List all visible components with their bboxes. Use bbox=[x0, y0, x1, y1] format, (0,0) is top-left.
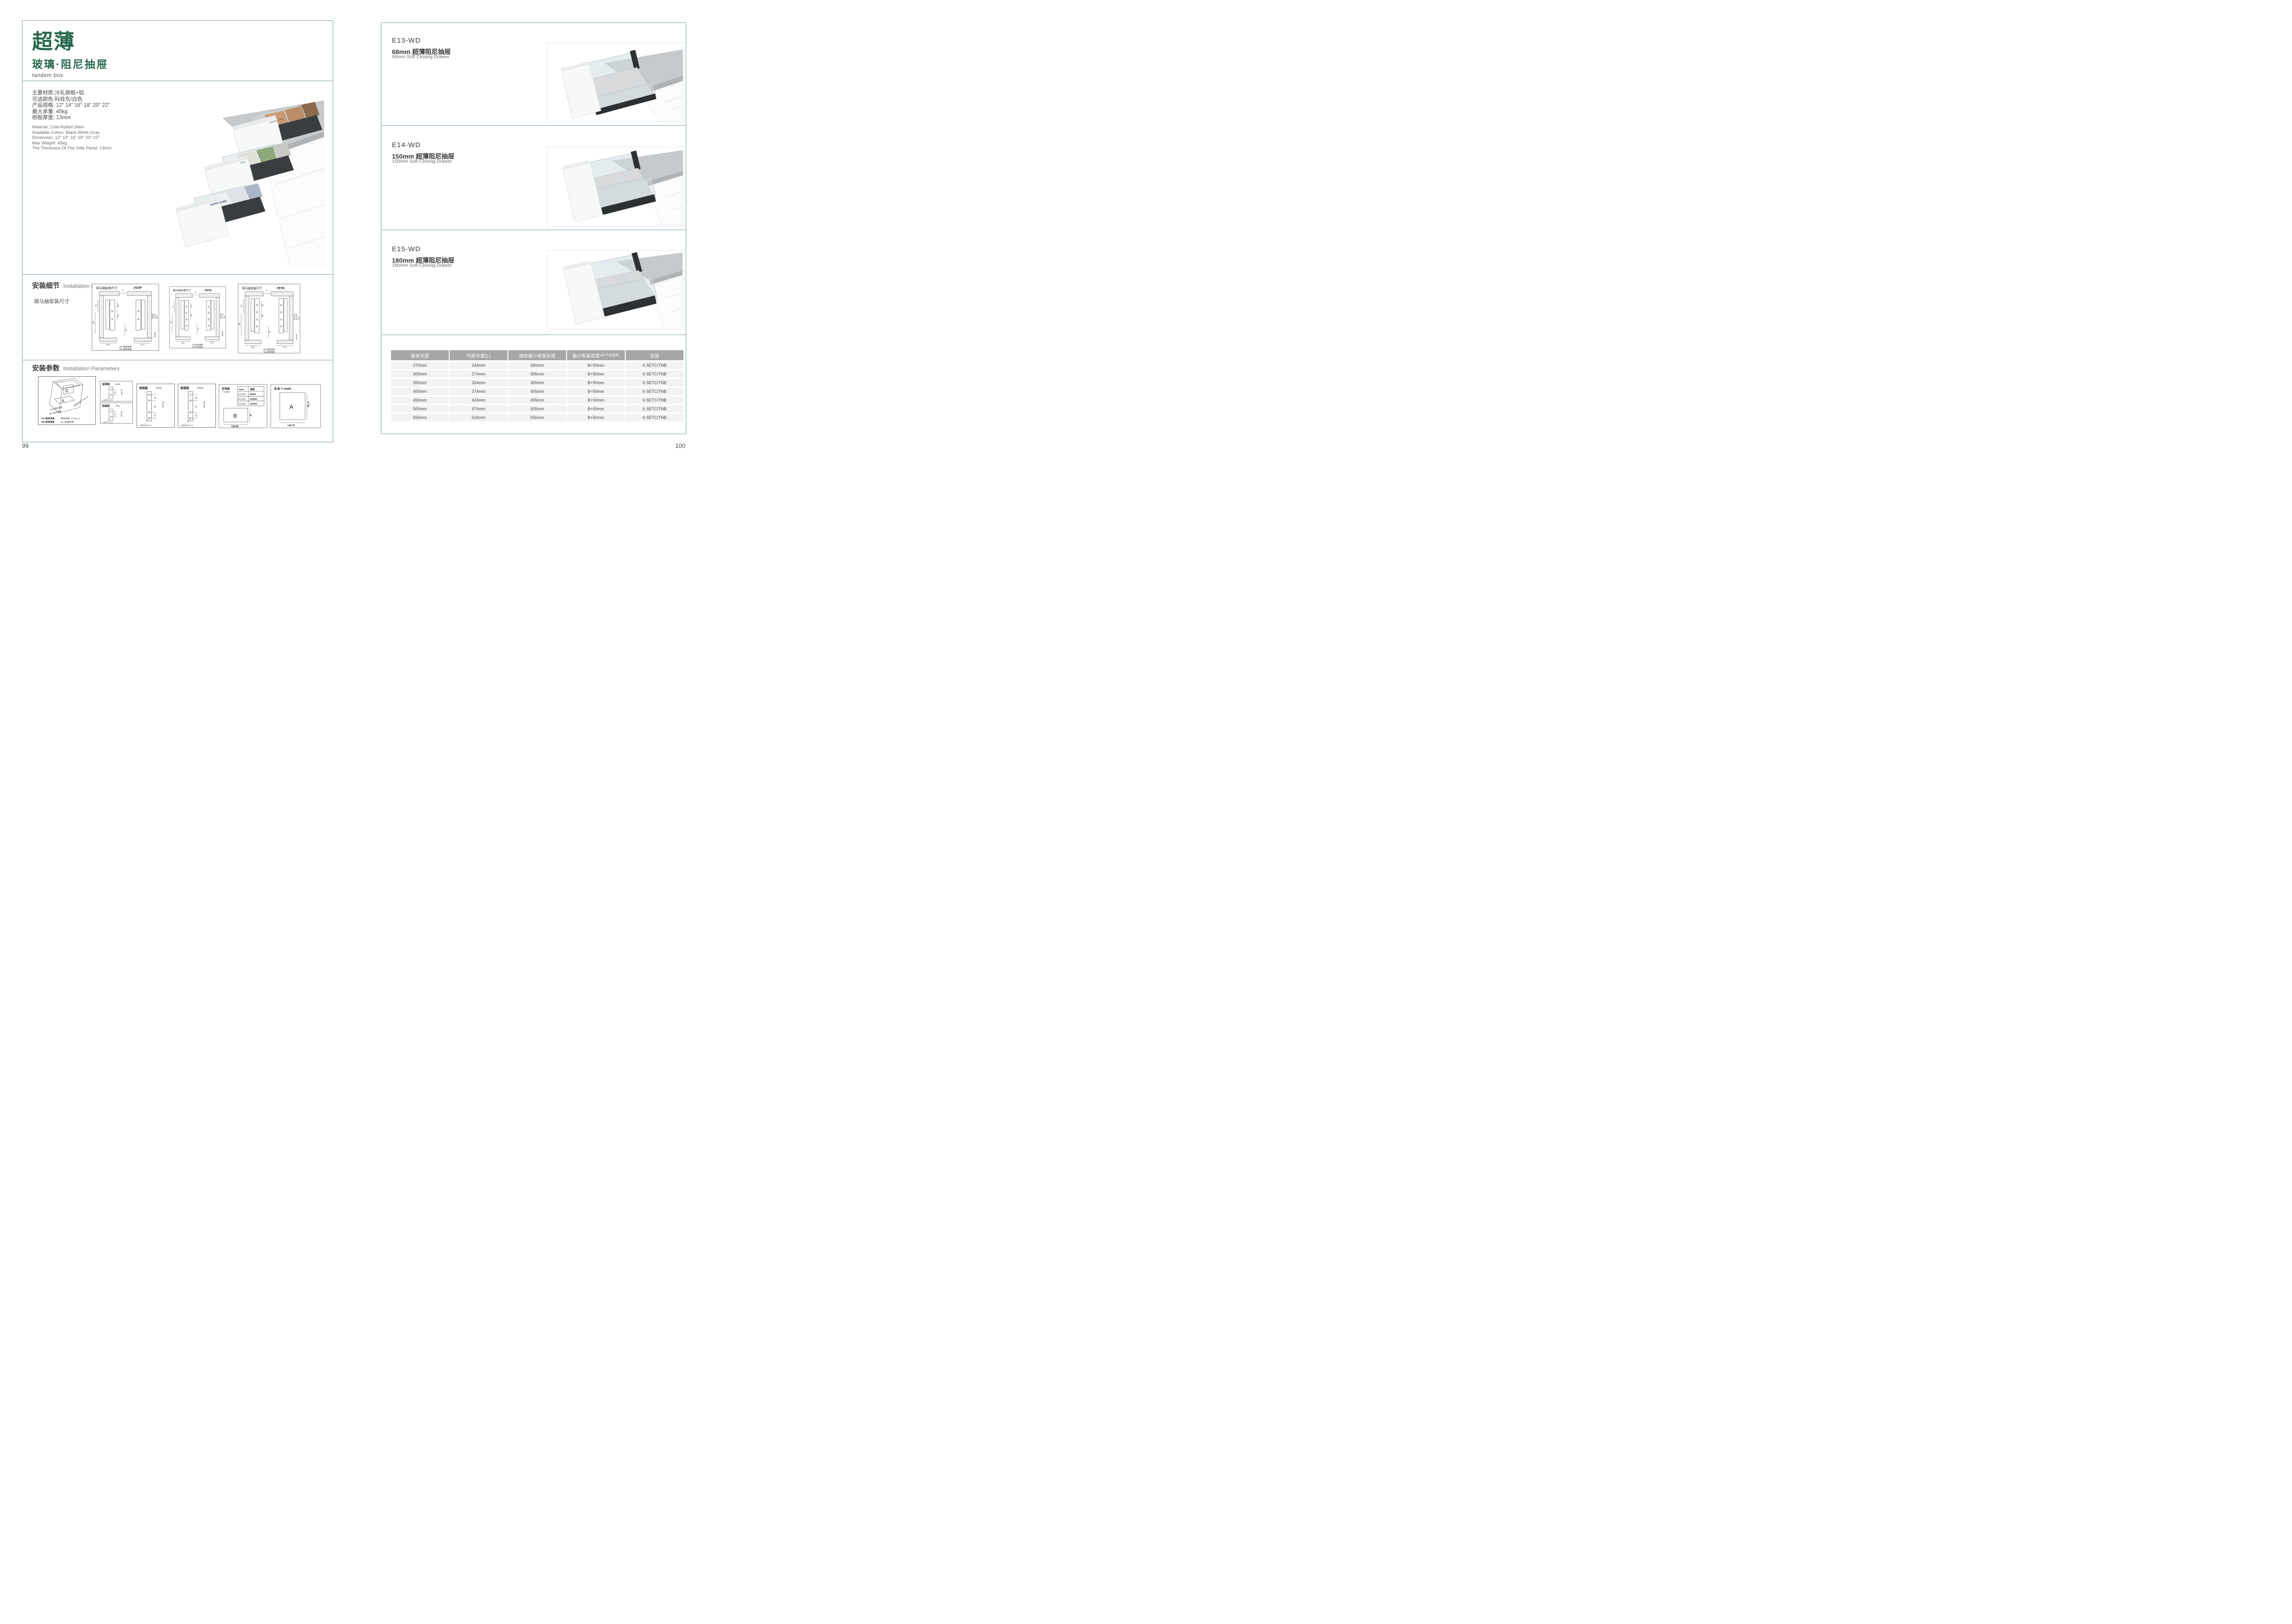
open-drawer-bottom: SUPER CORN bbox=[176, 183, 265, 247]
svg-text:min 54: min 54 bbox=[162, 401, 165, 408]
svg-text:32: 32 bbox=[114, 391, 116, 393]
svg-text:20: 20 bbox=[261, 304, 264, 307]
product-photo-e15 bbox=[547, 250, 684, 329]
front-panel-707G-diagram: 前面板 -707G 32 64 32 min 54 4-Ø2+0.2-0.1 bbox=[137, 384, 175, 428]
page-title: 超薄 bbox=[32, 31, 75, 52]
spec-line: 主要材质:冷轧钢板+铝 bbox=[32, 90, 110, 97]
svg-text:H: H bbox=[250, 414, 253, 416]
svg-text:16.5: 16.5 bbox=[181, 341, 185, 344]
svg-text:64: 64 bbox=[154, 405, 157, 408]
svg-text:20: 20 bbox=[117, 304, 119, 307]
svg-text:2-Ø2+0.2-0.1: 2-Ø2+0.2-0.1 bbox=[103, 421, 113, 423]
spec-line: 可选颜色:科技灰/白色 bbox=[32, 97, 110, 103]
install-details-subtitle: 骑马抽安装尺寸 bbox=[34, 297, 69, 305]
product-code: E15-WD bbox=[392, 245, 421, 253]
spec-line: 产品规格: 12" 14" 16" 18" 20" 22" bbox=[32, 103, 110, 109]
column-header: 内部长度(L) bbox=[450, 350, 507, 360]
svg-text:32: 32 bbox=[261, 314, 264, 317]
spec-line: Material: Cold-Rolled Steel bbox=[32, 125, 111, 130]
svg-text:-707P: -707P bbox=[133, 286, 142, 290]
spec-line: Max Weight: 45kg bbox=[32, 141, 111, 146]
svg-text:-707G: -707G bbox=[155, 387, 162, 390]
table-row: 300mm274mm305mmB+50mm6 SETC/TNB bbox=[391, 370, 683, 378]
svg-text:-707L: -707L bbox=[115, 405, 121, 408]
divider bbox=[381, 125, 686, 126]
table-row: 350mm324mm355mmB+50mm6 SETC/TNB bbox=[391, 379, 683, 386]
svg-text:Min36: Min36 bbox=[222, 331, 224, 336]
table-row: 550mm524mm555mmB+50mm6 SETC/TNB bbox=[391, 414, 683, 421]
svg-text:骑马抽安装尺寸: 骑马抽安装尺寸 bbox=[96, 286, 118, 290]
svg-text:前面板: 前面板 bbox=[181, 385, 190, 390]
install-params-title-en: Installation Parameters bbox=[63, 365, 120, 372]
product-code: E13-WD bbox=[392, 37, 421, 44]
install-diagram-707H: 骑马抽安装尺寸 -707H 9 20 32 bbox=[238, 284, 300, 353]
svg-text:Min36: Min36 bbox=[295, 334, 298, 339]
svg-text:A: A bbox=[61, 398, 65, 403]
install-diagram-707P: 骑马抽安装尺寸 -707P 9 20 32 16 32 bbox=[92, 284, 159, 351]
svg-text:32: 32 bbox=[195, 414, 198, 417]
svg-text:180MM: 180MM bbox=[249, 403, 257, 406]
product-name-en: 180mm Soft Closing Drawer bbox=[392, 263, 452, 268]
bottom-panel-diagram: 底 板 T=16MM A NL-6 LW-75 bbox=[270, 384, 321, 428]
table-row: 450mm424mm455mmB+50mm6 SETC/TNB bbox=[391, 396, 683, 404]
specs-english: Material: Cold-Rolled Steel Available Co… bbox=[32, 125, 111, 151]
svg-text:B: B bbox=[66, 389, 68, 393]
right-page-panel: E13-WD 68mm 超薄阻尼抽屉 68mm Soft Closing Dra… bbox=[381, 22, 686, 434]
spec-line: 侧板厚度; 13mm bbox=[32, 115, 110, 121]
svg-text:68MM: 68MM bbox=[249, 393, 256, 396]
svg-text:-707H: -707H bbox=[196, 387, 203, 390]
svg-text:16.5: 16.5 bbox=[251, 346, 255, 348]
svg-text:E14-WD: E14-WD bbox=[238, 398, 245, 400]
product-photo-e13 bbox=[547, 43, 684, 122]
product-name-en: 68mm Soft Closing Drawer bbox=[392, 54, 449, 60]
svg-text:min 54: min 54 bbox=[203, 401, 206, 408]
install-params-title-cn: 安装参数 bbox=[32, 364, 60, 372]
drawer-cabinet-photo: BINGO HIPIE EDO bbox=[154, 89, 324, 266]
svg-text:KB=柜体宽度: KB=柜体宽度 bbox=[193, 346, 203, 348]
divider bbox=[22, 274, 333, 275]
size-table: 基本长度 内部长度(L) 抽屉最小安装长度 最小安装高度(B=产品高度) 包装 … bbox=[391, 350, 683, 421]
svg-text:32: 32 bbox=[114, 413, 116, 415]
page-subtitle: 玻璃·阻尼抽屉 bbox=[32, 55, 109, 71]
svg-text:16: 16 bbox=[125, 329, 127, 331]
svg-text:37.5: 37.5 bbox=[210, 341, 214, 344]
svg-text:32: 32 bbox=[241, 304, 243, 307]
back-panel-diagram: 后背板 T=16MM Spec. 高度 E13-WD 68MM E14-WD 1… bbox=[219, 384, 267, 428]
svg-text:骑马抽安装尺寸: 骑马抽安装尺寸 bbox=[242, 286, 262, 290]
svg-text:min 54: min 54 bbox=[120, 389, 122, 395]
install-diagram-707G: 骑马抽安装尺寸 -707G 9 20 32 bbox=[169, 286, 226, 348]
svg-text:LW-85: LW-85 bbox=[231, 425, 238, 428]
left-page-panel: 超薄 玻璃·阻尼抽屉 tandem box 主要材质:冷轧钢板+铝 可选颜色:科… bbox=[22, 20, 333, 442]
table-row: 500mm474mm505mmB+50mm6 SETC/TNB bbox=[391, 405, 683, 413]
spec-line: 最大承重: 45kg bbox=[32, 109, 110, 116]
svg-text:195: 195 bbox=[224, 316, 226, 319]
product-code: E14-WD bbox=[392, 141, 421, 149]
divider bbox=[22, 360, 333, 360]
product-photo-e14 bbox=[547, 147, 684, 226]
svg-text:32: 32 bbox=[154, 396, 157, 399]
svg-text:T=16MM: T=16MM bbox=[222, 391, 230, 393]
cabinet-iso-diagram: B A LW=柜体净宽 KB=柜体宽度 柜体内空LT=NL+3 LW=柜体净宽 … bbox=[38, 376, 96, 425]
svg-text:171.50: 171.50 bbox=[222, 314, 224, 319]
front-panel-707H-diagram: 前面板 -707H 32 64 32 min 54 4-Ø2+0.2-0.1 bbox=[178, 384, 216, 428]
install-details-title-cn: 安装细节 bbox=[32, 282, 60, 290]
svg-text:A: A bbox=[289, 403, 293, 410]
svg-text:150MM: 150MM bbox=[249, 398, 257, 401]
svg-text:Min36: Min36 bbox=[154, 332, 156, 337]
spec-line: The Thickness Of The Side Panel: 13mm bbox=[32, 146, 111, 151]
svg-text:-707H: -707H bbox=[276, 286, 285, 290]
svg-text:37.5: 37.5 bbox=[140, 344, 144, 346]
svg-text:Spec.: Spec. bbox=[239, 388, 245, 391]
svg-text:E13-WD: E13-WD bbox=[238, 393, 245, 396]
svg-text:KB=柜体宽度: KB=柜体宽度 bbox=[119, 348, 132, 351]
page-number-left: 99 bbox=[22, 442, 28, 449]
svg-text:KB=柜体宽度: KB=柜体宽度 bbox=[264, 350, 275, 353]
svg-text:32: 32 bbox=[171, 306, 174, 308]
svg-text:前面板: 前面板 bbox=[139, 385, 149, 390]
svg-text:16: 16 bbox=[269, 330, 271, 333]
svg-text:32: 32 bbox=[154, 414, 157, 417]
svg-text:37.5: 37.5 bbox=[283, 346, 287, 348]
svg-text:NL-6: NL-6 bbox=[308, 402, 310, 407]
size-table-header-row: 基本长度 内部长度(L) 抽屉最小安装长度 最小安装高度(B=产品高度) 包装 bbox=[391, 350, 683, 360]
svg-text:16.5: 16.5 bbox=[106, 344, 110, 346]
svg-text:32: 32 bbox=[94, 304, 97, 307]
svg-text:225: 225 bbox=[298, 316, 300, 320]
svg-text:min 54: min 54 bbox=[120, 411, 122, 417]
svg-text:4-Ø2+0.2-0.1: 4-Ø2+0.2-0.1 bbox=[181, 424, 193, 427]
svg-text:32: 32 bbox=[195, 396, 198, 399]
catalog-spread: 超薄 玻璃·阻尼抽屉 tandem box 主要材质:冷轧钢板+铝 可选颜色:科… bbox=[0, 0, 711, 464]
svg-text:4-Ø2+0.2-0.1: 4-Ø2+0.2-0.1 bbox=[139, 424, 151, 427]
divider bbox=[381, 230, 686, 230]
drawer-render-e15 bbox=[548, 251, 683, 328]
spec-line: Available Colors: Black,White,Gray bbox=[32, 130, 111, 136]
svg-text:-707P: -707P bbox=[115, 383, 121, 386]
drawer-render-e14 bbox=[548, 147, 683, 225]
svg-text:54: 54 bbox=[93, 321, 95, 324]
divider bbox=[381, 335, 686, 335]
spec-line: Dimension: 12" 14" 16" 18" 20" 22" bbox=[32, 135, 111, 141]
drawer-render-e13 bbox=[548, 43, 683, 121]
column-header: 包装 bbox=[626, 350, 683, 360]
table-row: 270mm244mm280mmB+50mm6 SETC/TNB bbox=[391, 362, 683, 369]
table-row: 400mm374mm405mmB+50mm6 SETC/TNB bbox=[391, 388, 683, 395]
divider bbox=[22, 81, 333, 81]
svg-text:Min162: Min162 bbox=[220, 313, 221, 319]
svg-text:LW-75: LW-75 bbox=[287, 424, 294, 427]
svg-text:32: 32 bbox=[190, 314, 193, 317]
page-number-right: 100 bbox=[670, 442, 685, 449]
svg-text:2-Ø2+0.2-0.1: 2-Ø2+0.2-0.1 bbox=[103, 399, 113, 401]
front-panel-707L-diagram: 前面板 -707L 32 min 54 2-Ø2+0.2-0.1 bbox=[100, 402, 133, 424]
svg-text:E15-WD: E15-WD bbox=[238, 403, 245, 405]
svg-text:32: 32 bbox=[117, 314, 119, 317]
svg-text:LW=柜体净宽: LW=柜体净宽 bbox=[192, 344, 203, 346]
page-tagline: tandem box bbox=[32, 72, 63, 78]
specs-chinese: 主要材质:冷轧钢板+铝 可选颜色:科技灰/白色 产品规格: 12" 14" 16… bbox=[32, 90, 110, 121]
install-params-header: 安装参数Installation Parameters bbox=[32, 363, 120, 373]
column-header: 基本长度 bbox=[391, 350, 449, 360]
column-header: 最小安装高度(B=产品高度) bbox=[567, 350, 625, 360]
svg-text:54: 54 bbox=[238, 323, 241, 325]
column-header: 抽屉最小安装长度 bbox=[508, 350, 566, 360]
product-name-en: 150mm Soft Closing Drawer bbox=[392, 159, 452, 164]
front-panel-707P-diagram: 前面板 -707P 32 min 54 2-Ø2+0.2-0.1 bbox=[100, 381, 133, 402]
svg-text:113: 113 bbox=[156, 315, 158, 319]
svg-text:B: B bbox=[233, 413, 237, 419]
svg-text:64: 64 bbox=[195, 405, 198, 408]
svg-text:-707G: -707G bbox=[204, 289, 212, 292]
